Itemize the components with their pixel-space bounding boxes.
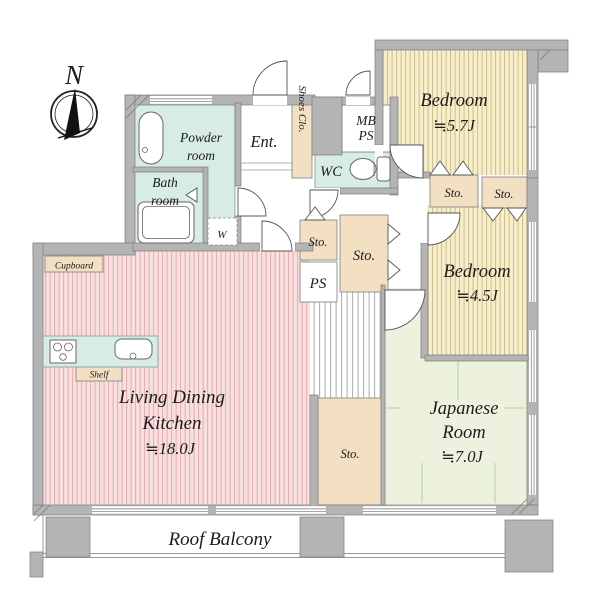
wall-segment (133, 167, 205, 172)
ldk-size: ≒18.0J (145, 439, 196, 458)
powder-room-line2: room (187, 148, 215, 163)
ldk-name-line1: Living Dining (118, 387, 225, 408)
closet-door-triangle (388, 224, 400, 244)
sto-hall-small-label: Sto. (308, 235, 327, 249)
floorplan-canvas: N Bedroom ≒5.7J Bedroom ≒4.5J Living Din… (0, 0, 600, 600)
balcony (30, 515, 553, 577)
closet-door-triangle (388, 260, 400, 280)
japanese-name-line1: Japanese (430, 399, 499, 419)
bath-room-line2: room (151, 193, 179, 208)
wall-segment (203, 167, 208, 243)
compass-north-label: N (64, 60, 85, 90)
japanese-name-line2: Room (441, 423, 485, 443)
washbasin-icon (139, 112, 163, 164)
sto-top-right-label: Sto. (494, 187, 513, 201)
wall-segment (235, 103, 241, 186)
bath-room-line1: Bath (152, 175, 178, 190)
wall-segment (312, 97, 342, 155)
bedroom-57-name: Bedroom (420, 91, 487, 111)
shelf-label: Shelf (90, 370, 110, 381)
cupboard-label: Cupboard (55, 262, 93, 272)
compass-icon (51, 88, 97, 140)
entrance-label: Ent. (249, 132, 277, 151)
mbps-line1: MB (355, 113, 376, 128)
wall-segment (375, 50, 383, 145)
bedroom-45-size: ≒4.5J (456, 286, 498, 305)
japanese-size: ≒7.0J (441, 447, 483, 466)
stove-icon (50, 340, 76, 363)
wall-segment (340, 188, 398, 194)
wall-segment (381, 285, 385, 505)
wall-segment (538, 50, 568, 72)
balcony-pillar (300, 517, 344, 557)
wall-segment (33, 243, 43, 515)
roof-balcony-label: Roof Balcony (168, 529, 272, 550)
balcony-pillar (46, 517, 90, 557)
ps-label: PS (309, 276, 327, 292)
wall-segment (33, 243, 135, 255)
wall-segment (310, 395, 318, 507)
wall-segment (375, 40, 568, 50)
wc-label: WC (320, 164, 342, 180)
shoes-closet-label: Shoes Clo. (296, 85, 308, 132)
toilet-bowl-icon (350, 159, 376, 180)
powder-room-door-arc (238, 188, 266, 216)
ldk-door-arc (262, 221, 292, 251)
sto-hall-large-label: Sto. (353, 248, 375, 264)
ldk-name-line2: Kitchen (141, 413, 201, 434)
bathtub-icon (138, 202, 194, 243)
washer-label: W (217, 229, 227, 241)
wall-segment (425, 355, 528, 361)
bedroom-45-name: Bedroom (443, 262, 510, 282)
bedroom-57-size: ≒5.7J (433, 116, 475, 135)
sink-icon (115, 339, 152, 359)
wall-segment (133, 243, 260, 251)
powder-room-line1: Powder (179, 130, 223, 145)
floorplan-svg: N Bedroom ≒5.7J Bedroom ≒4.5J Living Din… (0, 0, 600, 600)
mbps-line2: PS (358, 128, 374, 143)
toilet-tank-icon (377, 157, 390, 181)
balcony-pillar (505, 520, 553, 572)
sto-top-left-label: Sto. (444, 186, 463, 200)
entrance-door-arc (253, 61, 287, 95)
sto-bottom-label: Sto. (340, 447, 359, 461)
mbps-door-arc (346, 71, 370, 95)
balcony-step (30, 552, 43, 577)
